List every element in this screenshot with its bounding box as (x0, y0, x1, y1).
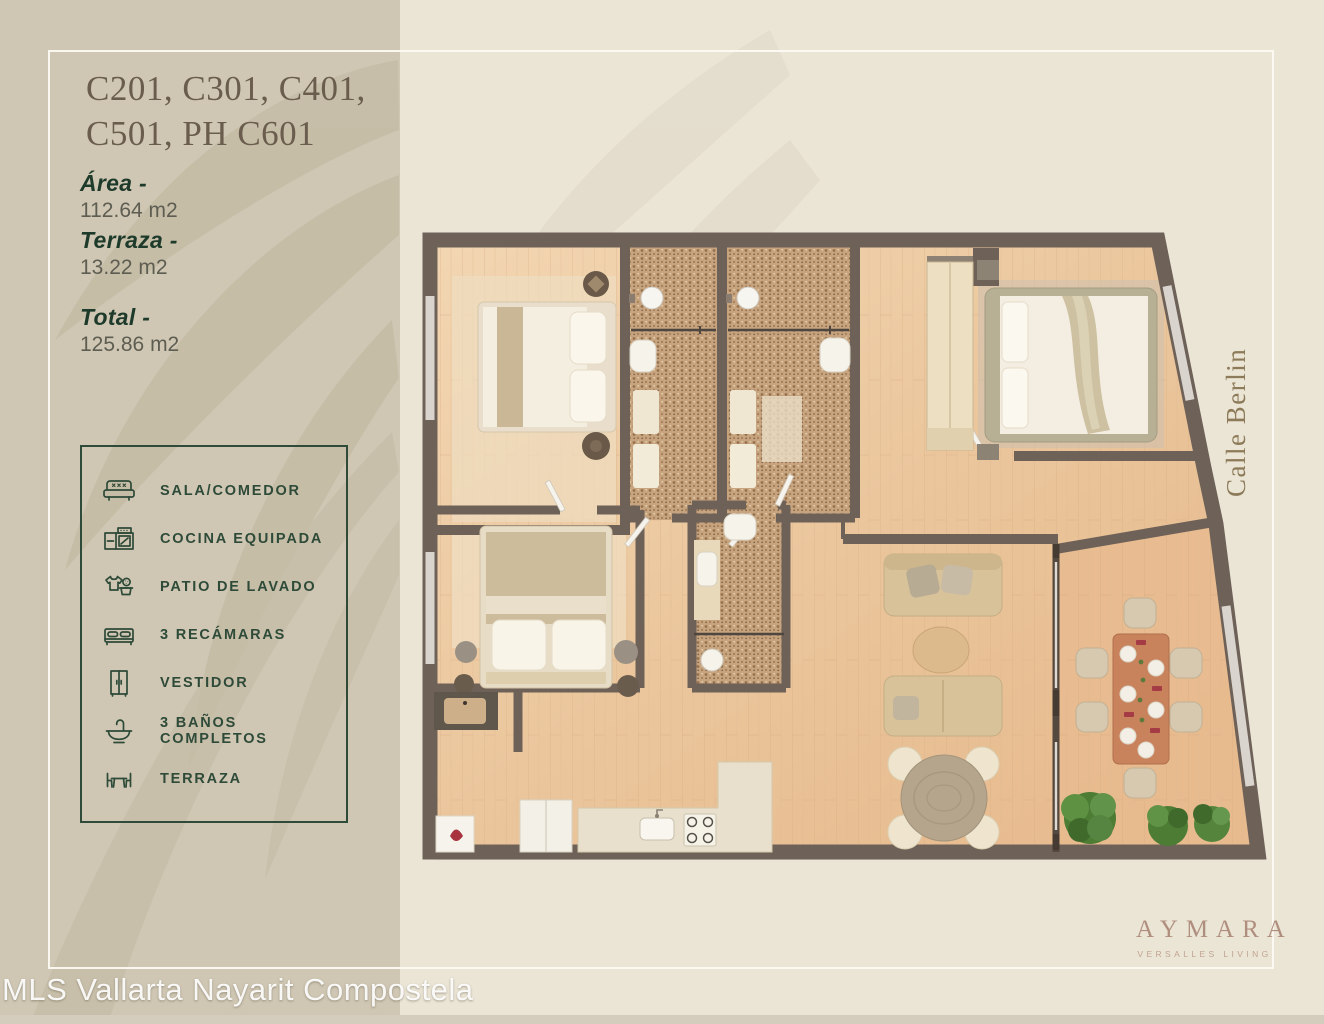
terrace-glass-wall (1053, 544, 1060, 852)
street-label: Calle Berlin (1221, 348, 1251, 497)
legend-label-sala: SALA/COMEDOR (160, 483, 301, 499)
brand-name: AYMARA (1128, 916, 1278, 944)
brand-tagline: VERSALLES LIVING (1128, 949, 1278, 959)
wardrobe-icon (100, 664, 138, 702)
terrace-icon (100, 760, 138, 798)
legend-label-lavado: PATIO DE LAVADO (160, 579, 316, 595)
brand-logo: AYMARA VERSALLES LIVING (1128, 916, 1278, 959)
living-room (884, 554, 1002, 849)
vestidor-closet (927, 256, 973, 450)
kitchen-icon (100, 520, 138, 558)
legend-row-terraza: TERRAZA (100, 755, 346, 803)
area-value: 112.64 m2 (80, 199, 179, 223)
area-label: Área - (80, 170, 179, 197)
amenities-legend: SALA/COMEDOR COCINA EQUIPADA (80, 445, 348, 823)
bathtub-icon (100, 712, 138, 750)
laundry-area (434, 692, 498, 730)
legend-row-vestidor: VESTIDOR (100, 659, 346, 707)
mls-watermark: MLS Vallarta Nayarit Compostela (2, 972, 474, 1008)
bedroom3 (454, 526, 639, 697)
legend-row-recamaras: 3 RECÁMARAS (100, 611, 346, 659)
bottom-strip (0, 1015, 1324, 1024)
terraza-value: 13.22 m2 (80, 256, 179, 280)
legend-label-terraza: TERRAZA (160, 771, 242, 787)
legend-label-cocina: COCINA EQUIPADA (160, 531, 323, 547)
total-value: 125.86 m2 (80, 333, 179, 357)
legend-row-cocina: COCINA EQUIPADA (100, 515, 346, 563)
page-title: C201, C301, C401, C501, PH C601 (86, 66, 386, 156)
legend-row-sala: SALA/COMEDOR (100, 467, 346, 515)
legend-label-vestidor: VESTIDOR (160, 675, 249, 691)
measurements-block: Área - 112.64 m2 Terraza - 13.22 m2 Tota… (80, 170, 179, 361)
terraza-label: Terraza - (80, 227, 179, 254)
legend-row-lavado: PATIO DE LAVADO (100, 563, 346, 611)
apartment (430, 240, 1258, 852)
unit-title-line1: C201, C301, C401, (86, 66, 386, 111)
laundry-icon (100, 568, 138, 606)
unit-title-line2: C501, PH C601 (86, 111, 386, 156)
legend-label-banos: 3 BAÑOS COMPLETOS (160, 715, 346, 747)
bed-icon (100, 616, 138, 654)
legend-row-banos: 3 BAÑOS COMPLETOS (100, 707, 346, 755)
floor-plan: Calle Berlin (400, 0, 1324, 1024)
master-bedroom (977, 260, 1157, 460)
sofa-icon (100, 472, 138, 510)
total-label: Total - (80, 304, 179, 331)
legend-label-recamaras: 3 RECÁMARAS (160, 627, 286, 643)
